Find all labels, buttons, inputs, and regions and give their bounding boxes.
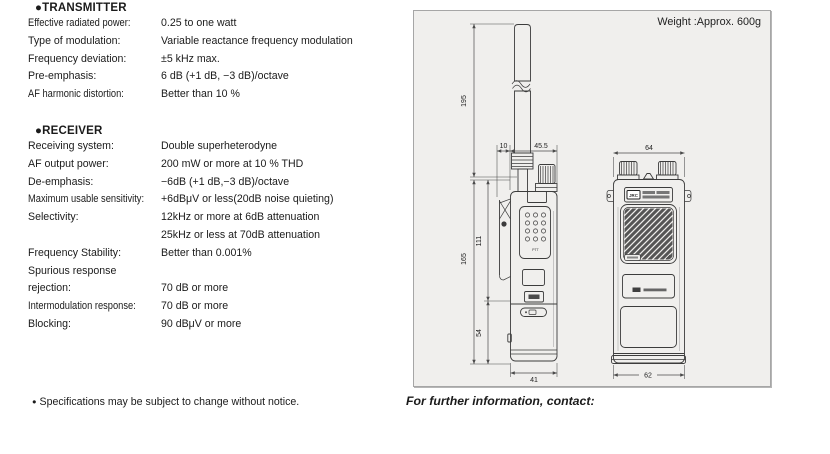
spec-label: Pre-emphasis: [28, 68, 161, 86]
spec-label [28, 227, 161, 245]
brand-label: JRC [629, 193, 639, 198]
spec-value: Variable reactance frequency modulation [161, 33, 353, 51]
spec-label: Spurious response [28, 263, 161, 281]
contact-note: For further information, contact: [406, 394, 595, 408]
transmitter-section: ●TRANSMITTER Effective radiated power: 0… [28, 1, 412, 104]
spec-label: Effective radiated power: [28, 15, 145, 33]
dim-body-height: 165 [461, 253, 468, 265]
spec-label: Intermodulation response: [28, 298, 145, 316]
spec-label: Type of modulation: [28, 33, 161, 51]
dim-side-width-bottom: 41 [530, 377, 538, 384]
spec-label: Receiving system: [28, 138, 161, 156]
front-view: JRC [564, 162, 732, 364]
spec-label: AF harmonic distortion: [28, 86, 145, 104]
spec-row: Intermodulation response: 70 dB or more [28, 298, 412, 316]
spec-label: Maximum usable sensitivity: [28, 191, 145, 209]
dim-antenna-length: 195 [461, 95, 468, 107]
spec-row: Spurious response [28, 263, 412, 281]
dim-upper-height: 111 [476, 236, 483, 247]
spec-value: ±5 kHz max. [161, 51, 220, 69]
spec-label: De-emphasis: [28, 174, 161, 192]
dim-front-width-bottom: 62 [644, 373, 652, 380]
spec-sheet: ●TRANSMITTER Effective radiated power: 0… [28, 1, 412, 334]
spec-row: Frequency deviation: ±5 kHz max. [28, 51, 412, 69]
spec-row: AF output power: 200 mW or more at 10 % … [28, 156, 412, 174]
spec-value: 25kHz or less at 70dB attenuation [161, 227, 320, 245]
spec-row: Selectivity: 12kHz or more at 6dB attenu… [28, 209, 412, 227]
spec-row: Type of modulation: Variable reactance f… [28, 33, 412, 51]
outline-heading-clip: ■ OUTLINE DRAWING [413, 0, 773, 6]
spec-value: Double superheterodyne [161, 138, 277, 156]
dim-front-width-top: 64 [645, 145, 653, 152]
spec-row: 25kHz or less at 70dB attenuation [28, 227, 412, 245]
spec-value: 6 dB (+1 dB, −3 dB)/octave [161, 68, 289, 86]
nameplate-text-bar [643, 191, 656, 194]
spec-row: Frequency Stability: Better than 0.001% [28, 245, 412, 263]
spec-value: 70 dB or more [161, 298, 228, 316]
spec-row: Maximum usable sensitivity: +6dBμV or le… [28, 191, 412, 209]
spec-row: Receiving system: Double superheterodyne [28, 138, 412, 156]
belt-clip [500, 199, 511, 280]
logo-mark [633, 288, 641, 293]
spec-value: −6dB (+1 dB,−3 dB)/octave [161, 174, 289, 192]
dim-clip-depth: 10 [500, 143, 508, 150]
spec-row: Blocking: 90 dBμV or more [28, 316, 412, 334]
receiver-section: ●RECEIVER Receiving system: Double super… [28, 124, 412, 334]
spec-row: Pre-emphasis: 6 dB (+1 dB, −3 dB)/octave [28, 68, 412, 86]
logo-text-bar [644, 289, 667, 292]
keypad-ptt-label: PTT [532, 248, 540, 252]
spec-value: 70 dB or more [161, 280, 228, 298]
side-view: PTT [500, 25, 558, 362]
spec-label: Frequency deviation: [28, 51, 161, 69]
spec-change-note-text: Specifications may be subject to change … [40, 396, 300, 408]
outline-drawing-panel: Weight :Approx. 600g [413, 10, 771, 387]
spec-value: Better than 0.001% [161, 245, 252, 263]
spec-change-note: ●Specifications may be subject to change… [32, 396, 299, 408]
nameplate-text-bar [657, 191, 670, 194]
spec-value: +6dBμV or less(20dB noise quieting) [161, 191, 333, 209]
spec-label: rejection: [28, 280, 161, 298]
spec-label: Frequency Stability: [28, 245, 161, 263]
spec-row: De-emphasis: −6dB (+1 dB,−3 dB)/octave [28, 174, 412, 192]
spec-value: 0.25 to one watt [161, 15, 236, 33]
spec-label: Blocking: [28, 316, 161, 334]
dim-lower-height: 54 [476, 329, 483, 337]
outline-heading: ■ OUTLINE DRAWING [413, 0, 773, 4]
transmitter-heading: ●TRANSMITTER [28, 1, 412, 15]
spec-value: Better than 10 % [161, 86, 240, 104]
dim-body-depth: 45.5 [534, 143, 548, 150]
nameplate-text-bar [643, 196, 670, 199]
receiver-heading: ●RECEIVER [28, 124, 412, 138]
outline-drawing: PTT [414, 11, 770, 386]
side-button-label-bar [529, 295, 540, 300]
spec-row: Effective radiated power: 0.25 to one wa… [28, 15, 412, 33]
spec-value: 12kHz or more at 6dB attenuation [161, 209, 319, 227]
spec-row: rejection: 70 dB or more [28, 280, 412, 298]
spec-label: Selectivity: [28, 209, 161, 227]
spec-label: AF output power: [28, 156, 161, 174]
spec-value: 200 mW or more at 10 % THD [161, 156, 303, 174]
bullet-icon: ● [32, 397, 37, 406]
spec-row: AF harmonic distortion: Better than 10 % [28, 86, 412, 104]
spec-value: 90 dBμV or more [161, 316, 241, 334]
